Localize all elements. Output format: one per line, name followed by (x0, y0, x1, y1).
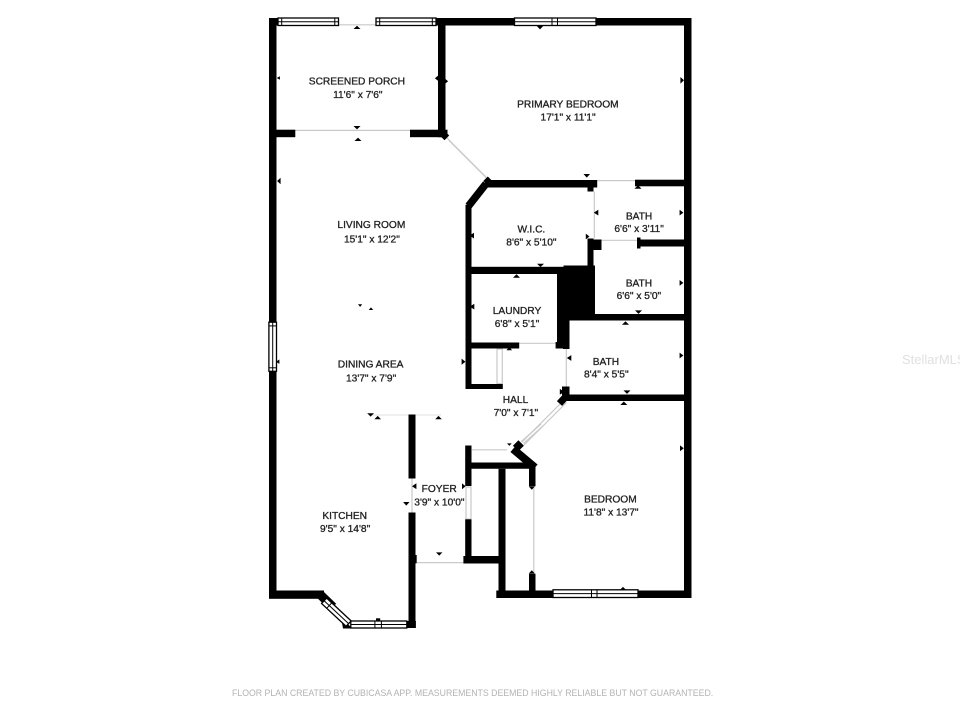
svg-text:6'6" x 3'11": 6'6" x 3'11" (614, 224, 664, 235)
svg-text:3'9" x 10'0": 3'9" x 10'0" (414, 498, 465, 509)
svg-text:8'4" x 5'5": 8'4" x 5'5" (584, 369, 629, 380)
svg-text:BATH: BATH (626, 278, 652, 289)
svg-text:BEDROOM: BEDROOM (584, 495, 637, 506)
svg-text:W.I.C.: W.I.C. (518, 225, 546, 236)
svg-text:8'6" x 5'10": 8'6" x 5'10" (506, 238, 557, 249)
svg-text:KITCHEN: KITCHEN (322, 511, 367, 522)
svg-text:FLOOR PLAN CREATED BY CUBICASA: FLOOR PLAN CREATED BY CUBICASA APP. MEAS… (232, 688, 713, 698)
svg-text:11'8" x 13'7": 11'8" x 13'7" (583, 508, 638, 519)
svg-text:SCREENED PORCH: SCREENED PORCH (309, 76, 405, 87)
svg-text:DINING AREA: DINING AREA (338, 360, 404, 371)
svg-text:LAUNDRY: LAUNDRY (493, 306, 542, 317)
svg-text:HALL: HALL (503, 395, 529, 406)
svg-text:BATH: BATH (626, 211, 652, 222)
svg-text:FOYER: FOYER (422, 484, 457, 495)
svg-text:LIVING ROOM: LIVING ROOM (337, 220, 405, 231)
svg-text:StellarMLS: StellarMLS (902, 352, 960, 367)
svg-text:17'1" x 11'1": 17'1" x 11'1" (541, 113, 596, 124)
svg-text:PRIMARY BEDROOM: PRIMARY BEDROOM (517, 100, 619, 111)
svg-text:6'8" x 5'1": 6'8" x 5'1" (495, 319, 540, 330)
svg-text:13'7" x 7'9": 13'7" x 7'9" (346, 374, 397, 385)
svg-text:7'0" x 7'1": 7'0" x 7'1" (494, 408, 539, 419)
svg-text:9'5" x 14'8": 9'5" x 14'8" (320, 524, 371, 535)
svg-text:15'1" x 12'2": 15'1" x 12'2" (344, 235, 400, 246)
svg-text:11'6" x 7'6": 11'6" x 7'6" (333, 90, 383, 101)
svg-text:6'6" x 5'0": 6'6" x 5'0" (617, 291, 662, 302)
svg-text:BATH: BATH (593, 357, 619, 368)
